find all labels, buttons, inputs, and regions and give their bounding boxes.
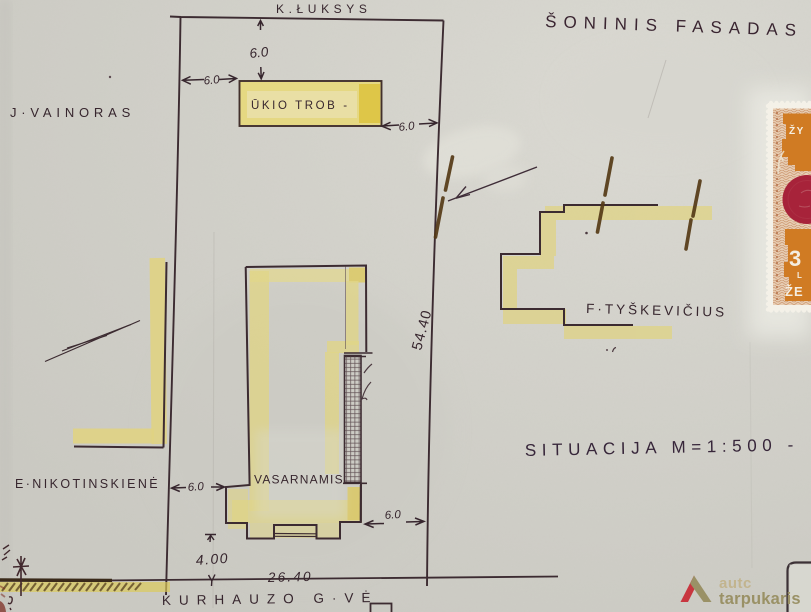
svg-text:6.0: 6.0 [187,481,204,494]
svg-text:VASARNAMIS: VASARNAMIS [254,473,344,487]
svg-text:tarpukaris: tarpukaris [719,590,801,608]
svg-text:ŪKIO TROB -: ŪKIO TROB - [251,100,350,112]
svg-text:KURHAUZO G·VĖ: KURHAUZO G·VĖ [162,590,379,608]
svg-text:J·VAINORAS: J·VAINORAS [10,105,135,120]
svg-text:26.40: 26.40 [267,569,313,585]
svg-text:6.0: 6.0 [384,509,401,522]
svg-text:K.ŁUKSYS: K.ŁUKSYS [276,2,372,16]
svg-text:L: L [797,271,802,280]
svg-text:6.0: 6.0 [398,120,416,134]
svg-text:ŽY: ŽY [789,124,805,137]
svg-text:E·NIKOTINSKIENĖ: E·NIKOTINSKIENĖ [15,477,160,491]
svg-text:4.00: 4.00 [195,550,229,568]
svg-text:6.0: 6.0 [249,44,270,61]
svg-text:6.0: 6.0 [203,74,221,87]
svg-text:ŽE: ŽE [785,284,804,299]
svg-text:3: 3 [789,246,801,271]
